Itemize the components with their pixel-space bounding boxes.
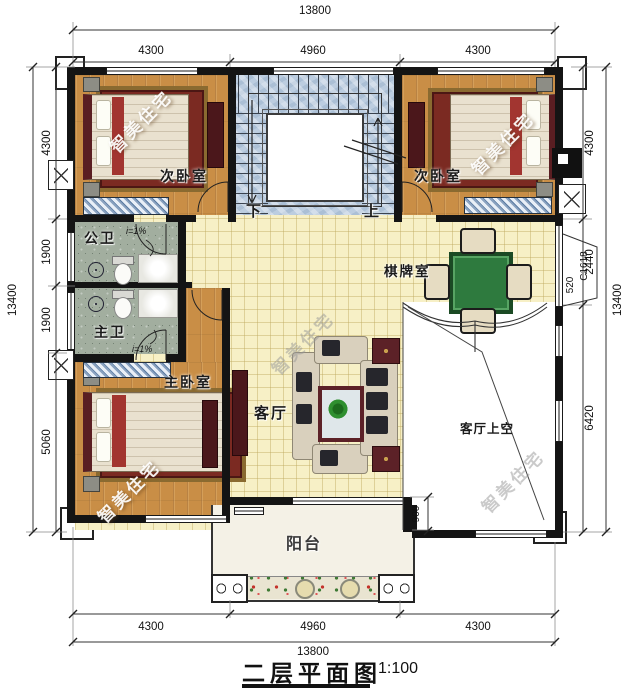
master-bench (83, 362, 171, 378)
sofa-cushion-1 (296, 372, 312, 392)
master-wardrobe (202, 400, 218, 468)
bedroomL-bench (83, 197, 169, 215)
bedroomL-pillow-1 (96, 100, 111, 130)
window-top-bedroomL (106, 67, 198, 75)
window-left-masterbath (67, 292, 75, 350)
wall-stair-left (228, 75, 236, 222)
stairwell-opening (266, 113, 364, 202)
label-bedroom-right: 次卧室 (414, 166, 462, 186)
dim-top-seg-2: 4960 (283, 44, 343, 58)
label-living-void: 客厅上空 (460, 418, 514, 437)
bedroomR-bench (464, 197, 552, 214)
label-chess-room: 棋牌室 (384, 260, 431, 280)
flower-planter-right (340, 579, 360, 599)
balcony-post-left (211, 574, 248, 603)
master-pillow-2 (96, 432, 111, 462)
master-nightstand-2 (83, 476, 100, 492)
master-nook-floor (186, 288, 222, 368)
window-top-bedroomR (437, 67, 545, 75)
ac-unit-icon-left-bottom (48, 350, 74, 380)
label-window-code: C1618 (578, 236, 592, 296)
flue-vent-icon (558, 154, 568, 164)
window-bottom-master (145, 515, 227, 523)
wall-master-living (222, 288, 230, 523)
label-master-bath: 主卫 (94, 322, 126, 342)
publicbath-shower (138, 254, 178, 283)
dim-left-total: 13400 (6, 270, 20, 330)
bedroomR-pillow-2 (526, 136, 541, 166)
label-stair-up: 上 (364, 200, 381, 221)
sofa-cushion-2 (296, 404, 312, 424)
wall-stair-right (394, 75, 402, 222)
chess-chair-right (506, 264, 532, 300)
dim-bottom-seg-1: 4300 (121, 620, 181, 634)
label-living-room: 客厅 (254, 402, 288, 423)
bedroomR-nightstand-2 (536, 182, 553, 197)
dim-bottom-seg-3: 4300 (448, 620, 508, 634)
dim-left-seg-1: 4300 (40, 113, 54, 173)
masterbath-shower (138, 289, 178, 318)
sofa-cushion-5 (366, 368, 388, 386)
dim-top-total: 13800 (285, 4, 345, 18)
dim-right-seg-3: 6420 (583, 388, 597, 448)
dim-bottom-seg-2: 4960 (283, 620, 343, 634)
wall-bath-right (178, 222, 186, 354)
label-balcony: 阳台 (286, 530, 322, 554)
window-right-void-a (555, 325, 563, 357)
bedroomR-nightstand-1 (536, 77, 553, 92)
sliding-door-balcony (292, 497, 404, 505)
window-right-C1618 (555, 225, 563, 307)
dim-right-total: 13400 (611, 270, 625, 330)
label-slope-public: i=1% (126, 226, 146, 236)
dim-top-seg-1: 4300 (121, 44, 181, 58)
dim-left-seg-3: 1900 (40, 290, 54, 350)
wall-balcony-a (230, 497, 292, 505)
side-table-bottom (372, 446, 400, 472)
label-bedroom-left: 次卧室 (160, 166, 208, 186)
dim-left-seg-2: 1900 (40, 222, 54, 282)
drawing-scale: 1:100 (378, 660, 418, 678)
sofa-cushion-7 (366, 416, 388, 434)
floor-plan-canvas: 次卧室 次卧室 主卧室 公卫 主卫 客厅 棋牌室 客厅上空 阳台 下 上 i=1… (0, 0, 640, 693)
window-right-void-b (555, 400, 563, 442)
wall-bedroomL-bottom-a (67, 215, 134, 222)
label-public-bath: 公卫 (84, 228, 116, 248)
mahjong-table (449, 252, 513, 314)
flue-icon (552, 148, 582, 178)
label-stair-down: 下 (246, 200, 263, 221)
sofa-cushion-3 (322, 340, 340, 356)
masterbath-showerhead-icon (88, 296, 104, 312)
ac-unit-icon-right (558, 184, 586, 214)
wall-bedroomL-bottom-c (228, 215, 236, 222)
living-tv-cabinet (232, 370, 248, 456)
chess-chair-top (460, 228, 496, 254)
label-window-width: 520 (564, 255, 578, 315)
sofa-cushion-4 (320, 450, 338, 466)
dim-top-seg-3: 4300 (448, 44, 508, 58)
wall-master-top-b (166, 354, 186, 362)
window-left-publicbath (67, 232, 75, 282)
wall-bedroomR-bottom-b (436, 215, 563, 222)
publicbath-showerhead-icon (88, 262, 104, 278)
sofa-cushion-6 (366, 392, 388, 410)
dim-right-seg-1: 4300 (583, 113, 597, 173)
drawing-title: 二层平面图 (242, 654, 382, 688)
coffee-table-plant (327, 398, 349, 420)
label-master-bedroom: 主卧室 (164, 372, 212, 392)
bedroomL-nightstand-1 (83, 77, 100, 92)
low-window-balcony (234, 507, 264, 515)
title-underline (242, 684, 370, 688)
dim-balcony-depth: 900 (410, 484, 424, 544)
bedroomL-tv-cabinet (207, 102, 224, 168)
masterbath-toilet (114, 297, 132, 319)
chess-chair-bottom (460, 308, 496, 334)
dim-left-seg-4: 5060 (40, 412, 54, 472)
side-table-top (372, 338, 400, 364)
window-top-stair (273, 67, 394, 75)
bedroomR-tv-cabinet (408, 102, 425, 168)
balcony-post-right (378, 574, 415, 603)
master-pillow-1 (96, 398, 111, 428)
flower-planter-left (295, 579, 315, 599)
window-bottom-void (475, 530, 547, 538)
bedroomL-nightstand-2 (83, 182, 100, 197)
wall-bedroomL-bottom-b (166, 215, 196, 222)
master-red-throw (112, 395, 126, 467)
publicbath-toilet (114, 263, 132, 285)
label-slope-master: i=1% (132, 344, 152, 354)
wall-nook-stub (186, 282, 192, 288)
wall-master-top-a (67, 354, 134, 362)
wall-bedroomR-bottom-a (394, 215, 402, 222)
